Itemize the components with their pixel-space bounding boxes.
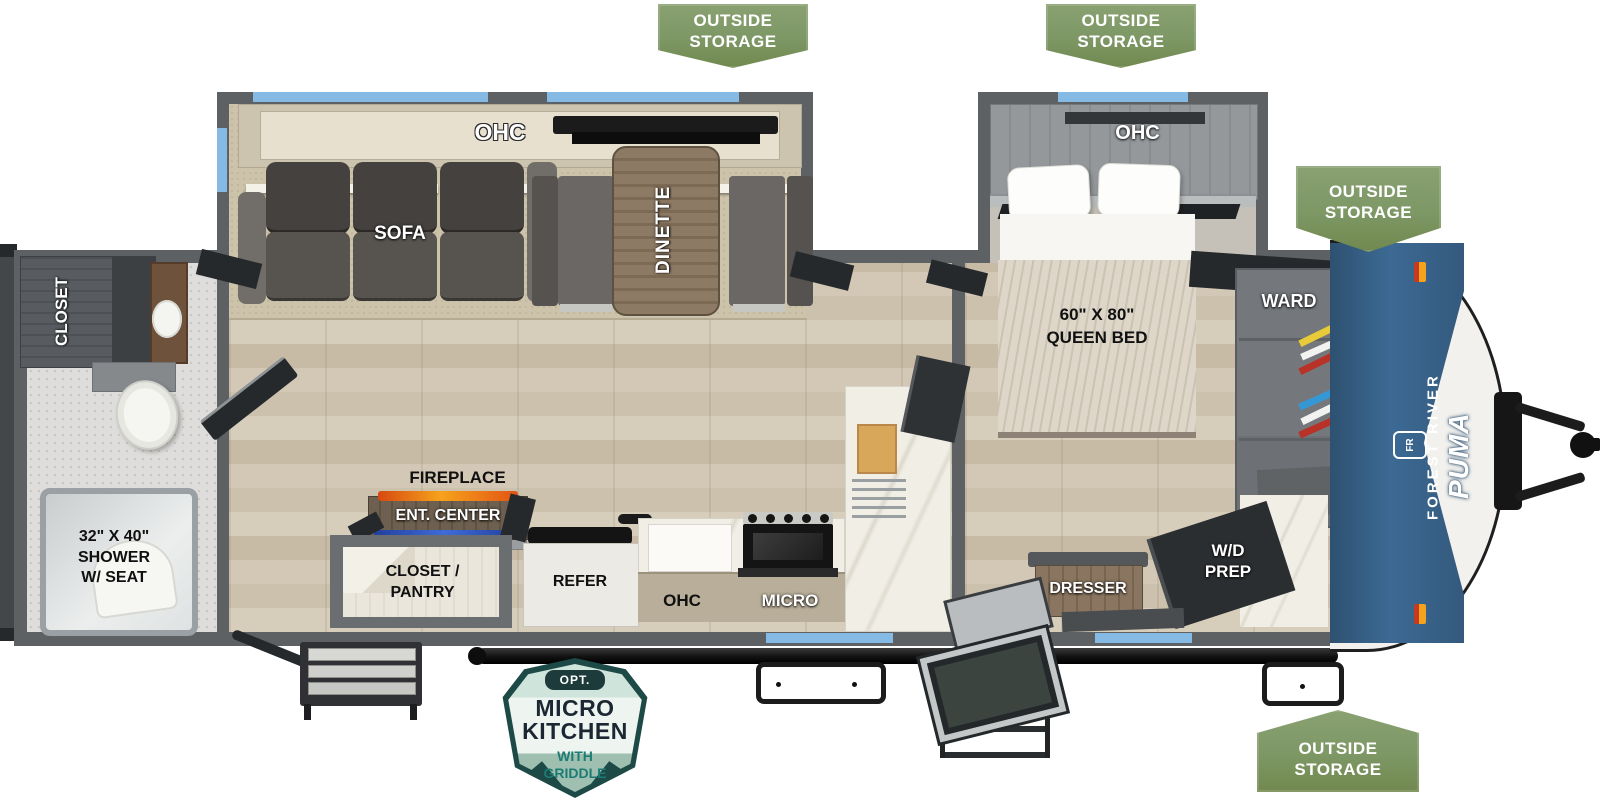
ent-center-label: ENT. CENTER [378, 504, 518, 528]
dinette-bench-right-base [733, 304, 785, 312]
outside-storage-line2: STORAGE [1325, 202, 1412, 223]
outside-storage-line1: OUTSIDE [1294, 738, 1381, 759]
awning-tube [476, 648, 1338, 664]
bed-sheet [1000, 214, 1195, 264]
sofa-back-cushion-1 [266, 162, 350, 234]
bed-ohc-label: OHC [1100, 120, 1175, 146]
bath-sink [152, 300, 182, 338]
sofa-ohc-label: OHC [455, 114, 545, 150]
ward-label: WARD [1248, 290, 1330, 312]
micro-kitchen-subtitle: WITHGRIDDLE [505, 748, 645, 782]
outside-storage-badge-bottom: OUTSIDESTORAGE [1257, 710, 1419, 792]
shower-text: SHOWER [78, 548, 150, 569]
outside-storage-badge-top-right: OUTSIDESTORAGE [1046, 4, 1196, 68]
shower-size: 32" X 40" [78, 527, 150, 548]
awning-bracket-right-bolt [1300, 684, 1305, 689]
awning-bracket-left-bolt2 [852, 682, 857, 687]
entry-step-tread-3 [308, 682, 416, 695]
ward-groove-1 [1239, 338, 1339, 341]
wd-prep-line2: PREP [1205, 561, 1251, 582]
dresser-label: DRESSER [1045, 578, 1131, 600]
dinette-bench-right-seat [729, 176, 785, 306]
micro-kitchen-badge: OPT. MICROKITCHEN WITHGRIDDLE [498, 658, 652, 798]
floorplan-canvas: OHC SOFA DINETTE OHC 60" X 80"QUEEN BED … [0, 0, 1600, 806]
queen-bed-label: 60" X 80"QUEEN BED [1022, 303, 1172, 351]
marker-light-top [1414, 262, 1426, 282]
refer-label: REFER [543, 572, 617, 592]
wd-prep-line1: W/D [1205, 540, 1251, 561]
micro-kitchen-title: MICROKITCHEN [505, 694, 645, 746]
kitchen-sink [648, 524, 732, 572]
fireplace-flame-strip [378, 491, 518, 501]
closet-pantry-line1: CLOSET / [386, 562, 460, 583]
kitchen-ohc-label: OHC [652, 590, 712, 612]
outside-storage-line2: STORAGE [1077, 31, 1164, 52]
dinette-tv-screen [572, 132, 760, 144]
bath-wall-lower [217, 460, 229, 632]
micro-kitchen-sub-line2: GRIDDLE [544, 765, 607, 782]
entry-step-tread-2 [308, 665, 416, 678]
dinette-bench-left-back [532, 176, 558, 306]
micro-kitchen-sub-line1: WITH [544, 748, 607, 765]
shower-label: 32" X 40"SHOWERW/ SEAT [48, 512, 180, 604]
puma-wordmark: PUMA [1440, 386, 1478, 526]
window-sofa-slide-1 [253, 92, 488, 102]
entry-step-leg-right [410, 704, 417, 720]
micro-label: MICRO [755, 590, 825, 612]
closet-pantry-line2: PANTRY [386, 583, 460, 604]
sofa-seat-cushion-3 [440, 232, 524, 301]
stove-window [753, 533, 823, 560]
outside-storage-line1: OUTSIDE [689, 10, 776, 31]
outside-storage-badge-top-left: OUTSIDESTORAGE [658, 4, 808, 68]
queen-bed-size: 60" X 80" [1046, 304, 1147, 327]
dinette-bench-right-back [787, 176, 813, 306]
dinette-label: DINETTE [644, 170, 684, 290]
pullout-racks [852, 476, 906, 518]
window-bed-slide [1058, 92, 1188, 102]
outside-storage-badge-front: OUTSIDESTORAGE [1296, 166, 1441, 252]
sofa-seat-cushion-1 [266, 232, 350, 301]
sofa-back-cushion-3 [440, 162, 524, 234]
outside-storage-line1: OUTSIDE [1077, 10, 1164, 31]
window-sofa-slide-side [217, 128, 227, 192]
shower-seat-text: W/ SEAT [78, 568, 150, 589]
window-bottom-bedroom [1095, 633, 1192, 643]
bed-pillow-right [1097, 163, 1181, 220]
hitch-ball-stub [1590, 438, 1600, 451]
micro-kitchen-title-line1: MICRO [522, 697, 628, 720]
rear-bumper [0, 246, 14, 638]
outside-storage-line2: STORAGE [689, 31, 776, 52]
window-sofa-slide-2 [547, 92, 739, 102]
entry-step-leg-left [304, 704, 311, 720]
stove-base [738, 568, 838, 577]
awning-bracket-left-bolt1 [776, 682, 781, 687]
hitch-arm-top [1514, 402, 1586, 433]
marker-light-bottom [1414, 604, 1426, 624]
ward-groove-2 [1239, 438, 1339, 441]
sofa-label: SOFA [358, 222, 442, 246]
entry-step-tread-1 [308, 648, 416, 661]
dresser-mat [1062, 608, 1185, 632]
micro-kitchen-opt-pill: OPT. [545, 670, 605, 690]
micro-kitchen-title-line2: KITCHEN [522, 720, 628, 743]
wd-prep-label: W/DPREP [1188, 538, 1268, 584]
cutting-board [857, 424, 897, 474]
window-bottom-kitchen [766, 633, 893, 643]
closet-pantry-label: CLOSET /PANTRY [355, 560, 490, 606]
outside-storage-line1: OUTSIDE [1325, 181, 1412, 202]
dinette-bench-left-seat [558, 176, 614, 306]
bath-closet-label: CLOSET [42, 268, 82, 356]
queen-bed-text: QUEEN BED [1046, 327, 1147, 350]
outside-storage-line2: STORAGE [1294, 759, 1381, 780]
dinette-bench-left-base [560, 304, 612, 312]
awning-end-cap [468, 647, 486, 665]
hitch-arm-bottom [1514, 472, 1586, 503]
fireplace-label: FIREPLACE [385, 468, 530, 488]
